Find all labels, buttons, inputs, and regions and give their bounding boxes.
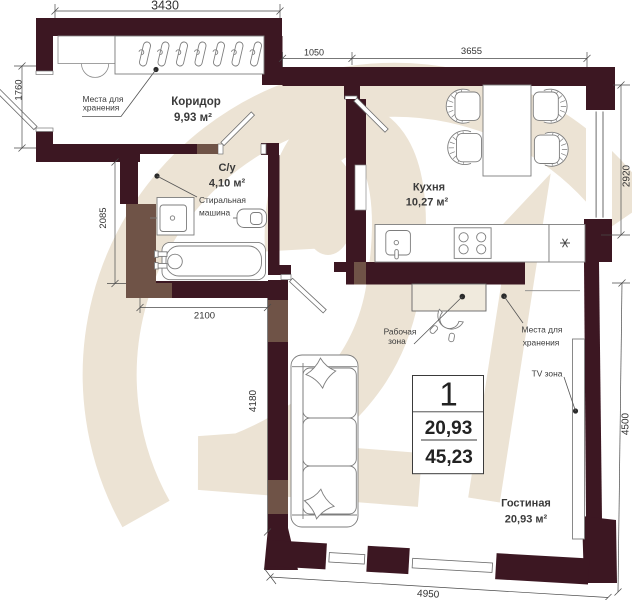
- svg-text:TV зона: TV зона: [532, 369, 563, 379]
- svg-text:Места для: Места для: [522, 325, 563, 335]
- svg-text:1050: 1050: [304, 48, 324, 58]
- svg-text:1760: 1760: [14, 79, 25, 100]
- svg-text:10,27 м²: 10,27 м²: [406, 197, 449, 209]
- svg-text:4,10 м²: 4,10 м²: [209, 178, 246, 190]
- svg-text:Коридор: Коридор: [171, 96, 221, 108]
- svg-text:4500: 4500: [621, 412, 632, 435]
- svg-text:Кухня: Кухня: [413, 182, 445, 194]
- svg-text:4950: 4950: [417, 588, 440, 600]
- svg-text:9,93 м²: 9,93 м²: [174, 112, 212, 124]
- svg-text:1: 1: [439, 376, 457, 413]
- svg-text:3655: 3655: [461, 46, 482, 57]
- svg-text:зона: зона: [388, 336, 406, 346]
- svg-text:Рабочая: Рабочая: [384, 327, 417, 337]
- svg-text:2085: 2085: [98, 207, 109, 228]
- svg-text:хранения: хранения: [523, 338, 560, 348]
- svg-text:20,93: 20,93: [425, 418, 473, 439]
- svg-text:Стиральная: Стиральная: [199, 195, 246, 205]
- svg-text:Гостиная: Гостиная: [501, 498, 551, 510]
- svg-text:С/у: С/у: [218, 162, 236, 174]
- svg-text:3430: 3430: [151, 0, 179, 13]
- svg-text:20,93 м²: 20,93 м²: [505, 514, 548, 526]
- svg-text:2920: 2920: [622, 164, 632, 187]
- svg-text:машина: машина: [199, 208, 230, 218]
- svg-text:2100: 2100: [194, 311, 215, 322]
- svg-text:хранения: хранения: [83, 103, 120, 113]
- svg-text:4180: 4180: [248, 389, 259, 412]
- svg-text:45,23: 45,23: [425, 447, 473, 468]
